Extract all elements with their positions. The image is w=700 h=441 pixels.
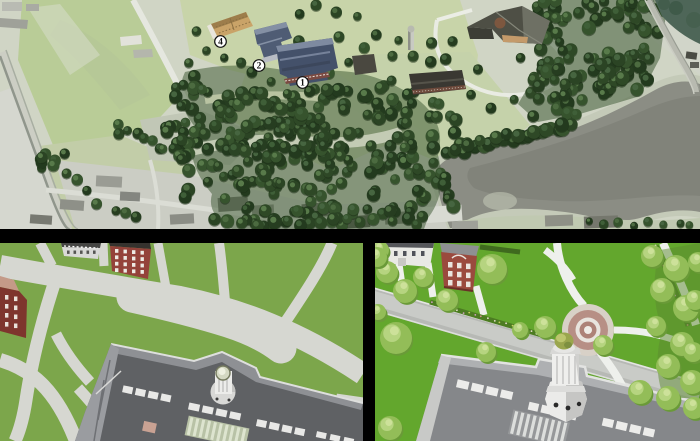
svg-text:4: 4 (218, 38, 223, 48)
svg-text:2: 2 (257, 62, 262, 72)
svg-text:1: 1 (300, 79, 305, 89)
